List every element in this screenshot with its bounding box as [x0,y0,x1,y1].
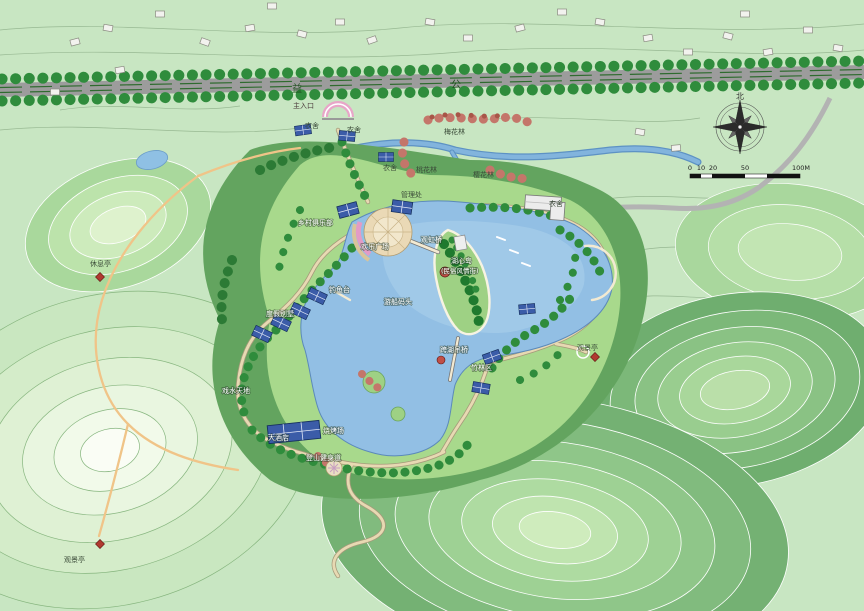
villa [519,304,536,315]
map-label-peach-grove: 桃花林 [416,165,437,174]
map-label-view-pavilion-sw: 观景亭 [64,555,85,564]
site-plan-canvas: 北 0 10 20 50 100M 益公主入口农舍农舍农舍农舍梅花林桃花林樱花林… [0,0,864,611]
map-label-cherry-grove: 樱花林 [473,170,494,179]
map-label-road-char-1: 益 [292,82,302,95]
scale-tick-0: 0 [688,164,692,172]
map-label-view-pavilion-east: 观景亭 [577,343,598,352]
map-label-rest-pavilion: 休息亭 [90,259,111,268]
map-label-boat-dock: 游船码头 [384,297,412,306]
map-label-farmhouse-1: 农舍 [305,121,319,130]
map-label-fishing-deck: 钓鱼台 [329,285,350,294]
map-label-lake-island: 湖心岛 [451,256,472,265]
bridgehead-pavilion [437,356,445,364]
club-building [391,200,412,215]
map-label-folk-street: (民俗风情街) [441,266,479,275]
map-label-hotel: 大酒店 [268,433,289,442]
scale-tick-10: 10 [697,164,705,172]
map-label-plaza: 欢乐广场 [361,242,389,251]
map-label-suspension-bridge: 跨湖吊桥 [440,345,468,354]
map-label-plum-grove: 梅花林 [444,127,465,136]
map-label-fitness-trail: 登山健身道 [306,453,341,462]
site-plan-map: 北 0 10 20 50 100M 益公主入口农舍农舍农舍农舍梅花林桃花林樱花林… [0,0,864,611]
map-label-main-entrance: 主入口 [293,101,314,110]
map-label-admin-office: 管理处 [401,190,422,199]
map-label-country-club: 乡村俱乐部 [298,218,333,227]
map-label-rainbow-bridge: 观虹桥 [421,235,442,244]
scale-tick-20: 20 [709,164,717,172]
map-label-bbq-area: 烧烤场 [323,426,344,435]
map-label-farmhouse-4: 农舍 [549,199,563,208]
island-building [454,235,467,251]
map-label-holiday-villas: 度假别墅 [266,309,294,318]
map-label-road-char-2: 公 [451,80,461,91]
scale-tick-100: 100M [792,164,810,172]
compass-north-label: 北 [736,92,744,101]
map-label-farmhouse-3: 农舍 [383,163,397,172]
map-label-bamboo-area: 竹林区 [471,363,492,372]
farmhouse-building [379,153,394,162]
scale-tick-50: 50 [741,164,749,172]
map-label-farmhouse-2: 农舍 [347,125,361,134]
map-label-water-play: 戏水天地 [222,386,250,395]
